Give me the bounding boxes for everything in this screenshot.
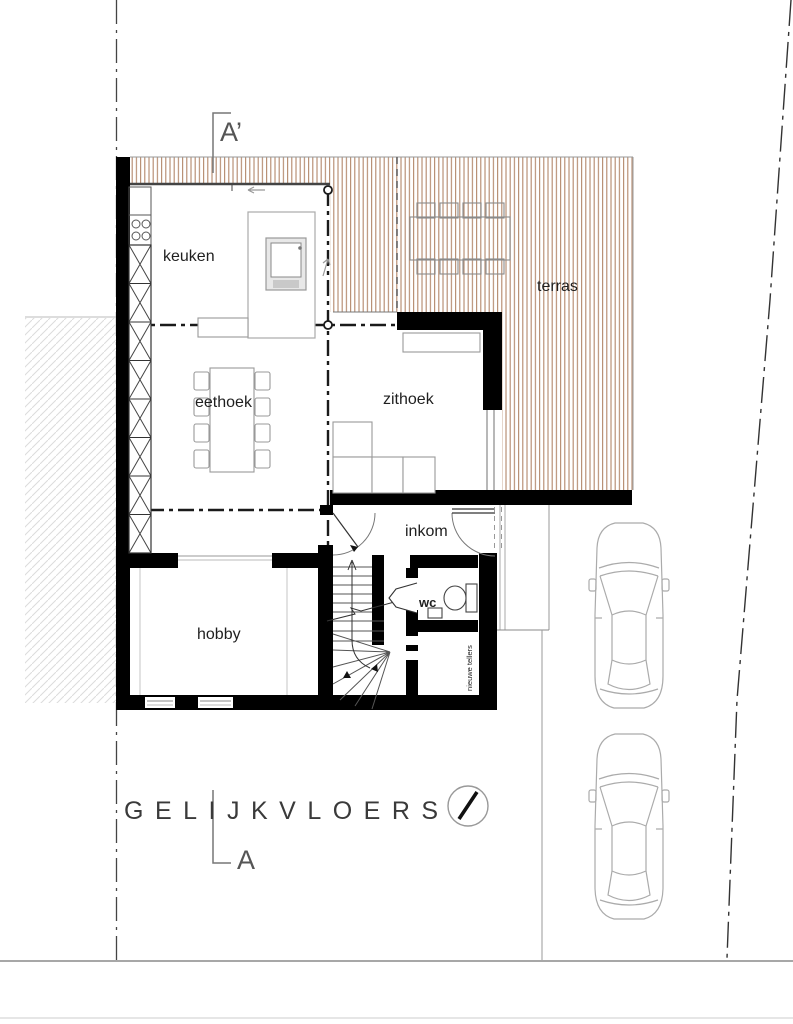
- staircase: [327, 560, 398, 709]
- label-eethoek: eethoek: [195, 394, 253, 411]
- toilet-bowl: [444, 586, 466, 610]
- label-meters: nieuwe tellers: [465, 645, 474, 691]
- parked-cars: [589, 523, 669, 919]
- label-inkom: inkom: [405, 523, 448, 540]
- floor-plan-drawing: A’ A keuken terras eethoek zithoek inkom…: [0, 0, 793, 1024]
- floor-plan-sheet: A’ A keuken terras eethoek zithoek inkom…: [0, 0, 793, 1024]
- label-wc: wc: [418, 595, 436, 610]
- sitting-furniture: [333, 333, 480, 493]
- label-keuken: keuken: [163, 248, 215, 265]
- north-arrow-icon: [448, 786, 488, 826]
- front-door-swing: [452, 513, 495, 556]
- floor-title: GELIJKVLOERS: [124, 797, 450, 825]
- dining-table: [210, 368, 254, 472]
- wc-door: [389, 583, 417, 613]
- sideboard: [198, 318, 248, 337]
- label-hobby: hobby: [197, 626, 241, 643]
- tv-sideboard: [403, 333, 480, 352]
- car-top-view: [589, 734, 669, 919]
- label-terras: terras: [537, 278, 578, 295]
- label-zithoek: zithoek: [383, 391, 435, 408]
- cooktop: [129, 215, 151, 245]
- car-top-view: [589, 523, 669, 708]
- title-block: GELIJKVLOERS: [124, 786, 488, 826]
- section-label-a-prime: A’: [220, 117, 242, 147]
- toilet-tank: [466, 584, 477, 612]
- neighbour-parcel-hatch: [25, 317, 116, 703]
- tall-cupboard-column: [129, 245, 151, 553]
- section-label-a: A: [237, 845, 255, 875]
